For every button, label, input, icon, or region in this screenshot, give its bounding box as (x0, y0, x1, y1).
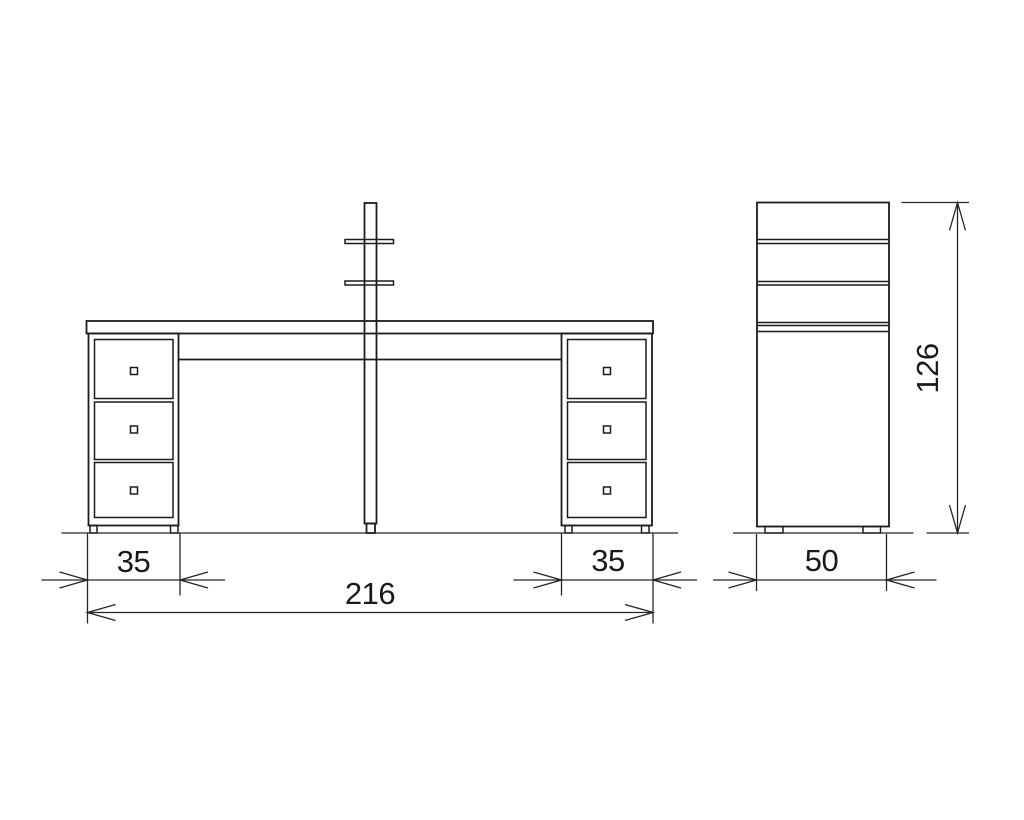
drawer (95, 402, 174, 460)
dimension-left-pedestal-width: 35 (42, 544, 226, 588)
dimension-overall-width: 216 (88, 576, 654, 621)
right-pedestal (562, 334, 653, 534)
dimension-right-pedestal-width: 35 (514, 543, 698, 588)
lower-shelf (345, 281, 394, 285)
pedestal-foot (565, 526, 572, 534)
technical-drawing: 35 216 35 50 126 (0, 0, 1024, 820)
drawer (95, 463, 174, 518)
drawer (568, 463, 647, 518)
drawer-knob (131, 487, 138, 494)
left-pedestal (89, 334, 179, 534)
shelf-pole-foot (367, 524, 376, 534)
shelf-pole-assembly (345, 203, 394, 533)
side-body (757, 203, 889, 527)
pedestal-foot (171, 526, 179, 534)
side-foot (863, 527, 881, 534)
desktop (87, 321, 654, 334)
dimension-label: 35 (117, 544, 150, 579)
upper-shelf (345, 240, 394, 244)
drawer-knob (131, 368, 138, 375)
dimensions: 35 216 35 50 126 (42, 203, 970, 624)
pedestal-body (89, 334, 179, 526)
dimension-label: 35 (591, 543, 624, 578)
pedestal-foot (642, 526, 650, 534)
drawer-knob (604, 487, 611, 494)
front-view (87, 203, 654, 533)
dimension-overall-height: 126 (910, 203, 966, 534)
drawing-canvas: 35 216 35 50 126 (0, 0, 1024, 820)
drawer-knob (604, 368, 611, 375)
dimension-label: 216 (345, 576, 395, 611)
drawer-knob (604, 426, 611, 433)
drawer-knob (131, 426, 138, 433)
dimension-depth: 50 (713, 543, 937, 588)
pedestal-foot (90, 526, 97, 534)
drawer (95, 340, 174, 399)
side-view (757, 203, 889, 534)
dimension-label: 126 (910, 343, 945, 393)
drawer (568, 340, 647, 399)
dimension-label: 50 (805, 543, 839, 578)
side-foot (765, 527, 783, 534)
drawer (568, 402, 647, 460)
pedestal-body (562, 334, 653, 526)
shelf-pole (365, 203, 377, 524)
